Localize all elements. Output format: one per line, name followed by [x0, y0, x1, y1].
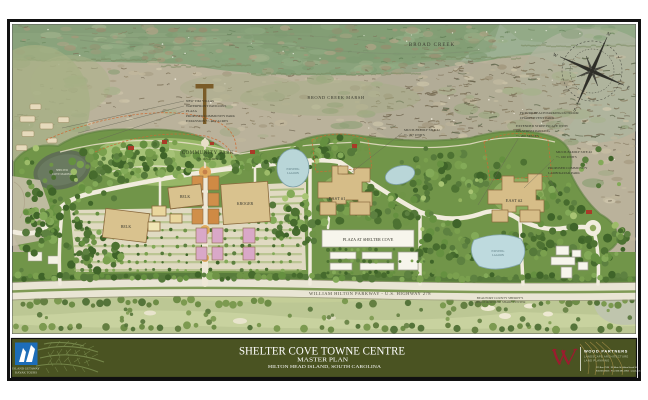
- svg-text:COMMUNITY PARK: COMMUNITY PARK: [182, 151, 234, 156]
- svg-text:EXISTING: EXISTING: [287, 168, 300, 171]
- svg-text:+/- 497 UNITS: +/- 497 UNITS: [404, 133, 425, 137]
- svg-text:EXISTING: EXISTING: [492, 250, 505, 253]
- svg-text:LAMB/KAYAK PARK: LAMB/KAYAK PARK: [548, 171, 580, 175]
- svg-text:PROPOSED COMMUNITY: PROPOSED COMMUNITY: [548, 166, 588, 170]
- svg-text:LAGOON: LAGOON: [287, 172, 299, 175]
- svg-text:KAYAK TOURS: KAYAK TOURS: [15, 371, 37, 375]
- svg-text:PO Box 7249 | 35 Main St, Hilt: PO Box 7249 | 35 Main St, Hilton Head SC: [596, 366, 638, 369]
- svg-text:PLAZA AT SHELTER COVE: PLAZA AT SHELTER COVE: [343, 237, 394, 242]
- svg-text:MULTI-FAMILY SITE #2: MULTI-FAMILY SITE #2: [556, 150, 592, 154]
- svg-text:BELK: BELK: [121, 224, 132, 229]
- svg-text:LANDSCAPE ARCHITECTURE: LANDSCAPE ARCHITECTURE: [584, 355, 629, 359]
- svg-text:BROAD CREEK: BROAD CREEK: [409, 43, 455, 48]
- svg-text:KROGER: KROGER: [237, 201, 254, 206]
- svg-text:SHELTER: SHELTER: [56, 169, 68, 172]
- svg-text:EXPANSION +/- 40.2 ACRES: EXPANSION +/- 40.2 ACRES: [186, 119, 228, 123]
- svg-text:+/- 200 SPACES: +/- 200 SPACES: [516, 134, 539, 138]
- svg-text:CHAIRS/EVENT PARK: CHAIRS/EVENT PARK: [520, 116, 555, 120]
- svg-text:NEW TIKI VILLAS: NEW TIKI VILLAS: [186, 99, 214, 103]
- svg-text:FUTURE BEACH PARKING/OUTDOOR: FUTURE BEACH PARKING/OUTDOOR: [520, 111, 579, 115]
- svg-text:WILLIAM HILTON PARKWAY - U.S.: WILLIAM HILTON PARKWAY - U.S. HIGHWAY 27…: [309, 291, 431, 296]
- svg-text:PLAZA: PLAZA: [186, 109, 197, 113]
- svg-text:WATERFRONT PAVILIONS: WATERFRONT PAVILIONS: [186, 104, 226, 108]
- svg-text:EAST #2: EAST #2: [506, 198, 523, 203]
- svg-text:EAST #1: EAST #1: [329, 196, 346, 201]
- svg-text:BROAD CREEK MARSH: BROAD CREEK MARSH: [307, 95, 365, 100]
- svg-text:SHELTER COVE TOWNE CENTRE: SHELTER COVE TOWNE CENTRE: [239, 344, 405, 357]
- svg-text:WOOD·PARTNERS: WOOD·PARTNERS: [584, 349, 628, 354]
- svg-text:COVE MARINA: COVE MARINA: [52, 173, 72, 176]
- svg-text:+/- 160 UNITS: +/- 160 UNITS: [556, 155, 577, 159]
- svg-text:LAGOON: LAGOON: [492, 254, 504, 257]
- svg-text:LAND PLANNING: LAND PLANNING: [584, 359, 610, 363]
- svg-text:EXTENDED STREETSCAPE WITH: EXTENDED STREETSCAPE WITH: [516, 124, 568, 128]
- svg-text:OFFICE & SENIOR SHARE CENTER: OFFICE & SENIOR SHARE CENTER: [474, 300, 526, 304]
- svg-text:PROPOSED COMMUNITY PARK: PROPOSED COMMUNITY PARK: [186, 114, 235, 118]
- svg-text:ON-STREET PARKING: ON-STREET PARKING: [516, 129, 551, 133]
- svg-text:843.681.8615 | Fax 843.681.198: 843.681.8615 | Fax 843.681.1984 | wood.c…: [596, 371, 641, 373]
- svg-text:BELK: BELK: [180, 194, 191, 199]
- svg-text:+/- 10.5 ACRES: +/- 10.5 ACRES: [198, 157, 218, 161]
- svg-text:MASTER PLAN: MASTER PLAN: [297, 356, 349, 363]
- svg-text:MULTI-FAMILY SITE #1: MULTI-FAMILY SITE #1: [404, 128, 440, 132]
